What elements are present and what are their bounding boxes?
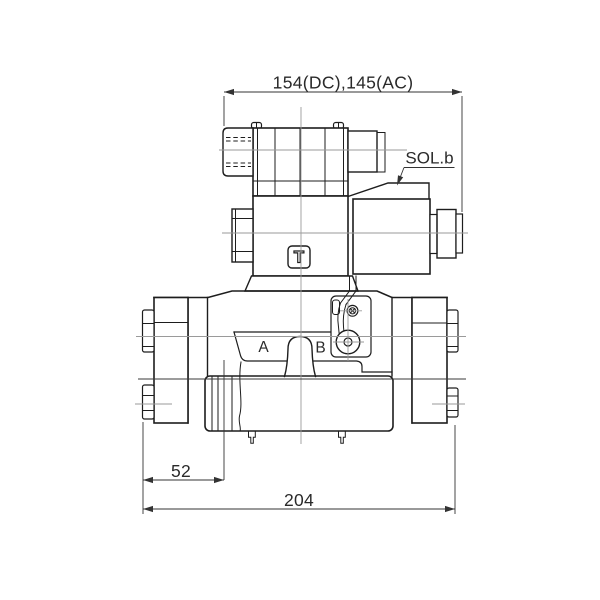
pilot-mounting-flange bbox=[245, 276, 358, 291]
port-boss-dome bbox=[285, 337, 316, 377]
solenoid-coil-assembly bbox=[223, 123, 385, 197]
port-b-label: B bbox=[315, 340, 325, 357]
maker-logo: T bbox=[288, 246, 310, 268]
dimension-204-text: 204 bbox=[284, 490, 314, 510]
body-top-face bbox=[154, 291, 447, 298]
solenoid-label: SOL.b bbox=[405, 149, 453, 168]
top-dimension-text: 154(DC),145(AC) bbox=[273, 73, 414, 93]
solenoid-callout: SOL.b bbox=[397, 149, 455, 186]
solenoid-b-body bbox=[353, 199, 430, 274]
drawing-svg: T bbox=[0, 0, 600, 600]
left-end-plugs bbox=[143, 310, 155, 419]
valve-technical-drawing: T bbox=[0, 0, 600, 600]
connector-box bbox=[223, 128, 253, 176]
pilot-valve: T bbox=[232, 183, 463, 291]
port-labels: A B bbox=[258, 339, 325, 357]
dimension-52: 52 bbox=[143, 422, 224, 514]
dimension-52-text: 52 bbox=[171, 461, 191, 481]
knurled-knob bbox=[437, 210, 456, 259]
right-end-plugs bbox=[447, 310, 458, 417]
locating-pins bbox=[249, 431, 346, 443]
coil-hatched-face bbox=[377, 133, 385, 173]
main-valve-body bbox=[143, 291, 459, 443]
detent-mechanism bbox=[331, 291, 371, 357]
manual-override-knob bbox=[430, 210, 463, 259]
coil-end-block bbox=[348, 131, 377, 172]
logo-letter: T bbox=[294, 248, 305, 267]
base-block bbox=[205, 376, 393, 431]
solenoid-bracket bbox=[348, 183, 429, 200]
port-a-label: A bbox=[258, 339, 269, 356]
hex-end-plug bbox=[232, 209, 253, 262]
